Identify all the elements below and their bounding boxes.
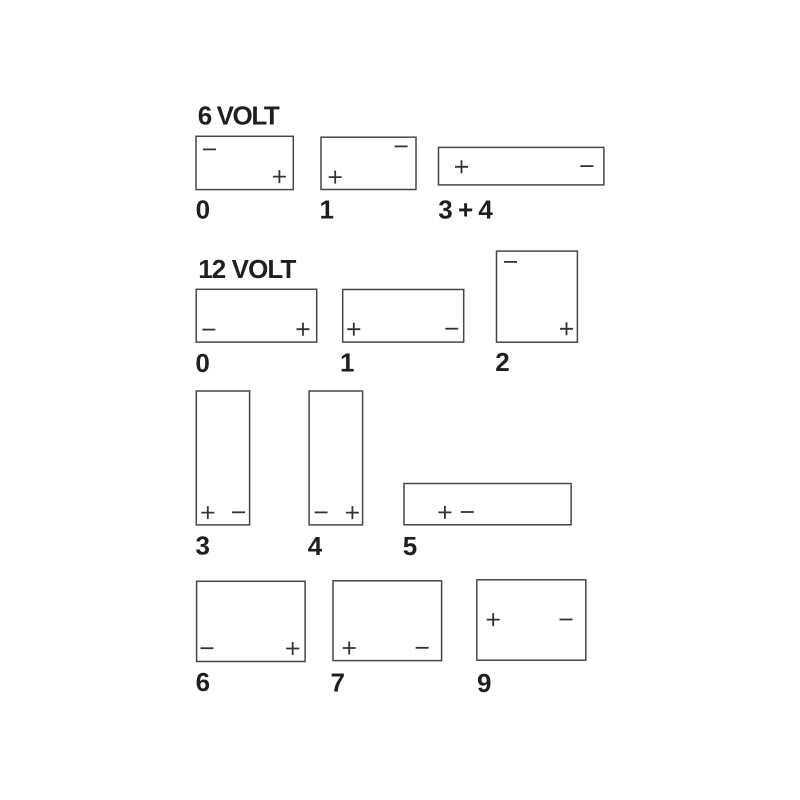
svg-text:3 + 4: 3 + 4 [438,194,493,224]
svg-text:4: 4 [308,531,323,561]
svg-text:9: 9 [477,668,491,698]
svg-text:5: 5 [403,531,417,561]
svg-text:7: 7 [331,667,345,697]
svg-text:0: 0 [195,348,209,378]
svg-text:3: 3 [196,531,210,561]
svg-text:2: 2 [495,347,509,377]
svg-text:0: 0 [196,195,210,225]
svg-text:6 VOLT: 6 VOLT [198,101,280,131]
svg-text:1: 1 [320,195,334,225]
svg-text:6: 6 [196,667,210,697]
svg-text:12 VOLT: 12 VOLT [198,254,296,284]
svg-text:1: 1 [340,348,354,378]
